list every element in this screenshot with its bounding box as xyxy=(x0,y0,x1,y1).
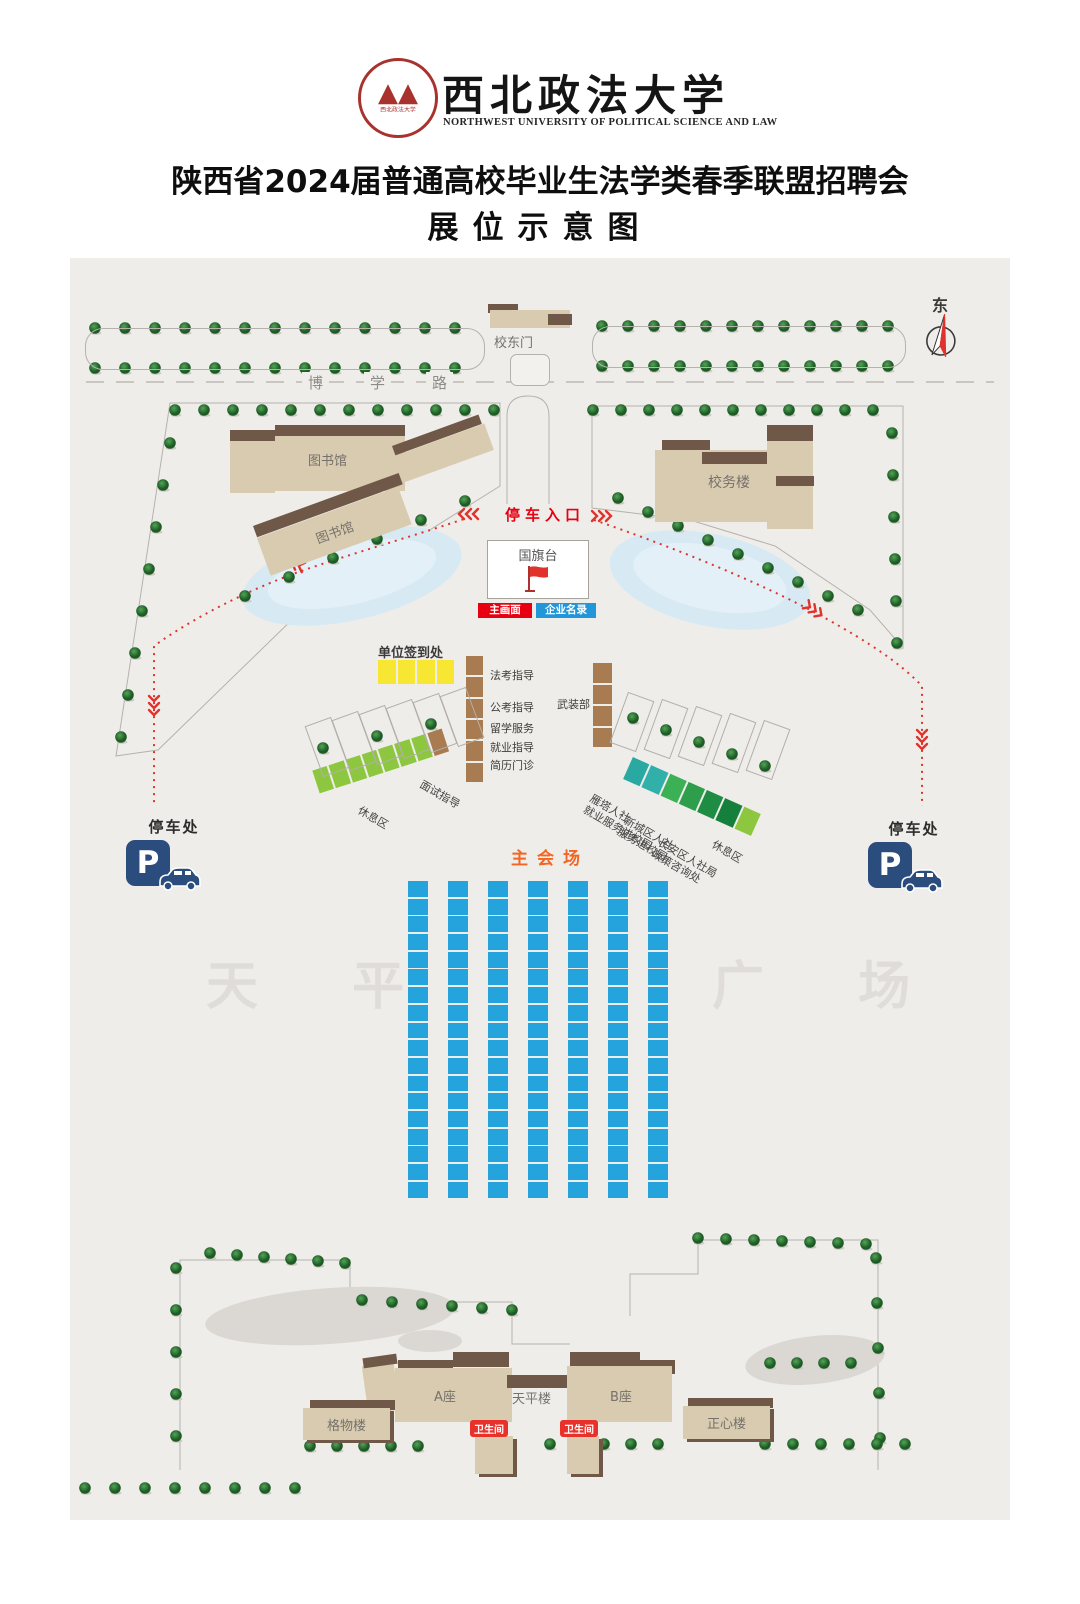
zhengxin-building: 正心楼 xyxy=(683,1406,770,1439)
tree-icon xyxy=(693,1233,704,1244)
booth-cell xyxy=(528,1182,548,1198)
strip-cell xyxy=(398,660,416,684)
chevron-arrow-icon xyxy=(917,730,927,749)
booth-cell xyxy=(488,1058,508,1074)
tree-icon xyxy=(257,405,268,416)
tianping-connector-roof xyxy=(507,1375,569,1388)
gate-booth xyxy=(510,354,550,386)
tree-icon xyxy=(672,405,683,416)
tree-icon xyxy=(357,1295,368,1306)
tree-icon xyxy=(402,405,413,416)
toilet-block-west xyxy=(475,1436,513,1474)
tree-icon xyxy=(158,480,169,491)
booth-cell xyxy=(608,1023,628,1039)
service-booth-label: 法考指导 xyxy=(490,667,534,683)
booth-cell xyxy=(408,1093,428,1109)
tree-icon xyxy=(315,405,326,416)
tree-icon xyxy=(171,1347,182,1358)
tree-icon xyxy=(616,405,627,416)
strip-cell xyxy=(593,728,612,748)
tree-icon xyxy=(290,1483,301,1494)
library-annex xyxy=(230,438,275,493)
tree-icon xyxy=(199,405,210,416)
booth-cell xyxy=(448,934,468,950)
booth-cell xyxy=(648,899,668,915)
booth-cell xyxy=(648,1111,668,1127)
tree-icon xyxy=(416,515,427,526)
booth-cell xyxy=(648,952,668,968)
booth-cell xyxy=(648,1058,668,1074)
tree-icon xyxy=(890,554,901,565)
tree-icon xyxy=(228,405,239,416)
strip-cell xyxy=(593,685,612,705)
main-screen-tag: 主画面 xyxy=(478,603,532,618)
tree-icon xyxy=(653,1439,664,1450)
strip-cell xyxy=(417,660,435,684)
booth-cell xyxy=(608,1129,628,1145)
booth-cell xyxy=(448,1129,468,1145)
tree-icon xyxy=(110,1483,121,1494)
booth-cell xyxy=(568,987,588,1003)
tree-icon xyxy=(733,549,744,560)
tree-icon xyxy=(756,405,767,416)
booth-cell xyxy=(568,969,588,985)
booth-cell xyxy=(488,987,508,1003)
booth-cell xyxy=(528,1005,548,1021)
booth-cell xyxy=(648,1093,668,1109)
booth-cell xyxy=(408,1146,428,1162)
gewu-building: 格物楼 xyxy=(303,1408,390,1440)
booth-cell xyxy=(648,1005,668,1021)
booth-cell xyxy=(568,899,588,915)
booth-cell xyxy=(608,934,628,950)
tree-icon xyxy=(749,1235,760,1246)
booth-cell xyxy=(608,1093,628,1109)
booth-cell xyxy=(528,916,548,932)
rock-blob xyxy=(743,1329,887,1391)
booth-cell xyxy=(608,1058,628,1074)
square-watermark-east: 广 场 xyxy=(712,944,948,1019)
booth-cell xyxy=(648,1040,668,1056)
booth-cell xyxy=(608,969,628,985)
strip-cell xyxy=(466,656,483,675)
rock-blob xyxy=(398,1330,462,1352)
poster-page: ▲▲ 西北政法大学 西北政法大学 NORTHWEST UNIVERSITY OF… xyxy=(0,0,1080,1604)
booth-cell xyxy=(448,916,468,932)
university-name-en: NORTHWEST UNIVERSITY OF POLITICAL SCIENC… xyxy=(443,117,778,128)
admin-label: 校务楼 xyxy=(708,472,750,492)
booth-cell xyxy=(488,899,508,915)
strip-cell xyxy=(437,660,455,684)
booth-cell xyxy=(608,1005,628,1021)
tree-icon xyxy=(777,1236,788,1247)
booth-cell xyxy=(608,1164,628,1180)
tree-icon xyxy=(230,1483,241,1494)
tree-icon xyxy=(489,405,500,416)
booth-cell xyxy=(528,934,548,950)
tree-icon xyxy=(763,563,774,574)
road-char: 路 xyxy=(426,372,453,393)
tree-icon xyxy=(872,1439,883,1450)
toilet-block-east xyxy=(567,1436,599,1474)
car-icon xyxy=(154,866,202,892)
booth-cell xyxy=(528,1146,548,1162)
library-label: 图书馆 xyxy=(308,450,347,469)
booth-cell xyxy=(608,899,628,915)
tree-icon xyxy=(171,1263,182,1274)
booth-cell xyxy=(488,1093,508,1109)
tree-icon xyxy=(626,1439,637,1450)
booth-cell xyxy=(448,1076,468,1092)
tree-icon xyxy=(644,405,655,416)
booth-cell xyxy=(568,1076,588,1092)
tree-icon xyxy=(144,564,155,575)
booth-cell xyxy=(608,881,628,897)
booth-cell xyxy=(488,1164,508,1180)
tree-icon xyxy=(853,605,864,616)
strip-cell xyxy=(593,706,612,726)
library-roof xyxy=(275,425,405,436)
tree-icon xyxy=(259,1252,270,1263)
booth-cell xyxy=(608,916,628,932)
booth-cell xyxy=(448,1146,468,1162)
booth-cell xyxy=(448,1040,468,1056)
east-gate-roof xyxy=(548,314,572,325)
booth-cell xyxy=(488,1023,508,1039)
booth-cell xyxy=(648,1076,668,1092)
booth-cell xyxy=(408,1164,428,1180)
tree-icon xyxy=(507,1305,518,1316)
parking-entrance-label: 停车入口 xyxy=(505,504,585,525)
tree-icon xyxy=(200,1483,211,1494)
tree-icon xyxy=(332,1441,343,1452)
admin-tower-roof xyxy=(767,425,813,441)
booth-cell xyxy=(568,1058,588,1074)
booth-cell xyxy=(488,881,508,897)
compass-icon xyxy=(916,310,966,372)
seal-mountain-icon: ▲▲ xyxy=(378,81,418,105)
university-seal-logo: ▲▲ 西北政法大学 xyxy=(358,58,438,138)
booth-column xyxy=(528,881,548,1199)
booth-cell xyxy=(648,969,668,985)
booth-cell xyxy=(488,1005,508,1021)
tree-icon xyxy=(721,1234,732,1245)
tree-icon xyxy=(116,732,127,743)
booth-cell xyxy=(488,916,508,932)
booth-cell xyxy=(568,1111,588,1127)
tree-icon xyxy=(232,1250,243,1261)
block-a-label: A座 xyxy=(434,1386,456,1405)
booth-cell xyxy=(648,1023,668,1039)
tree-icon xyxy=(805,1237,816,1248)
booth-cell xyxy=(648,1129,668,1145)
tree-icon xyxy=(305,1441,316,1452)
road-char: 博 xyxy=(302,372,329,393)
booth-cell xyxy=(648,934,668,950)
tree-icon xyxy=(151,522,162,533)
strip-cell xyxy=(466,741,483,760)
booth-cell xyxy=(528,1040,548,1056)
zhengxin-label: 正心楼 xyxy=(707,1413,746,1432)
booth-cell xyxy=(528,1111,548,1127)
booth-cell xyxy=(488,969,508,985)
tree-icon xyxy=(313,1256,324,1267)
booth-cell xyxy=(568,1146,588,1162)
chevron-arrow-icon xyxy=(592,511,611,521)
booth-cell xyxy=(488,1076,508,1092)
campus-map: 校东门 东 博 学 路 图书馆 图书馆 xyxy=(70,258,1010,1520)
booth-column xyxy=(648,881,668,1199)
booth-cell xyxy=(528,1058,548,1074)
tree-icon xyxy=(171,1389,182,1400)
tree-icon xyxy=(588,405,599,416)
tree-icon xyxy=(599,1439,610,1450)
tree-enclosure-west xyxy=(85,328,485,370)
tree-icon xyxy=(460,496,471,507)
tree-icon xyxy=(80,1483,91,1494)
booth-cell xyxy=(568,1182,588,1198)
road-char: 学 xyxy=(364,372,391,393)
booth-cell xyxy=(488,1111,508,1127)
armed-forces-label: 武装部 xyxy=(546,696,590,712)
booth-cell xyxy=(568,952,588,968)
booth-cell xyxy=(648,916,668,932)
tree-icon xyxy=(165,438,176,449)
booth-cell xyxy=(528,881,548,897)
admin-roof xyxy=(776,476,814,486)
tree-icon xyxy=(344,405,355,416)
booth-cell xyxy=(528,1164,548,1180)
car-icon xyxy=(896,868,944,894)
booth-cell xyxy=(528,1129,548,1145)
booth-cell xyxy=(608,1146,628,1162)
chevron-arrow-icon xyxy=(459,509,478,519)
tree-icon xyxy=(812,405,823,416)
library-annex-roof xyxy=(230,430,275,441)
tree-icon xyxy=(205,1248,216,1259)
strip-cell xyxy=(378,660,396,684)
booth-cell xyxy=(488,1129,508,1145)
booth-cell xyxy=(608,1040,628,1056)
tree-icon xyxy=(613,493,624,504)
booth-cell xyxy=(608,952,628,968)
tree-icon xyxy=(340,1258,351,1269)
block-a-roof xyxy=(453,1352,509,1367)
university-name-cn: 西北政法大学 xyxy=(442,62,730,123)
tree-icon xyxy=(819,1358,830,1369)
booth-cell xyxy=(528,1093,548,1109)
tree-icon xyxy=(793,577,804,588)
booth-column xyxy=(408,881,428,1199)
booth-cell xyxy=(568,1093,588,1109)
booth-cell xyxy=(488,1040,508,1056)
tree-icon xyxy=(816,1439,827,1450)
strip-cell xyxy=(466,763,483,782)
booth-cell xyxy=(568,1005,588,1021)
tree-icon xyxy=(792,1358,803,1369)
tree-icon xyxy=(844,1439,855,1450)
tree-icon xyxy=(788,1439,799,1450)
booth-cell xyxy=(448,1005,468,1021)
booth-cell xyxy=(448,1182,468,1198)
booth-cell xyxy=(568,1040,588,1056)
tree-icon xyxy=(873,1343,884,1354)
block-b-label: B座 xyxy=(610,1386,632,1405)
tianping-building-label: 天平楼 xyxy=(512,1388,551,1407)
tree-icon xyxy=(765,1358,776,1369)
booth-cell xyxy=(448,987,468,1003)
booth-cell xyxy=(608,1111,628,1127)
tree-icon xyxy=(417,1299,428,1310)
tree-enclosure-east xyxy=(592,326,906,368)
service-booth-label: 就业指导 xyxy=(490,739,534,755)
tree-icon xyxy=(373,405,384,416)
tree-icon xyxy=(386,1441,397,1452)
company-directory-tag: 企业名录 xyxy=(536,603,596,618)
tree-icon xyxy=(431,405,442,416)
booth-cell xyxy=(408,1076,428,1092)
booth-cell xyxy=(648,881,668,897)
booth-cell xyxy=(568,1023,588,1039)
booth-cell xyxy=(528,899,548,915)
red-flag-icon xyxy=(525,564,551,594)
booth-cell xyxy=(488,934,508,950)
tree-icon xyxy=(477,1303,488,1314)
flag-platform-label: 国旗台 xyxy=(518,545,557,564)
tree-icon xyxy=(840,405,851,416)
booth-cell xyxy=(488,1182,508,1198)
booth-cell xyxy=(408,1040,428,1056)
service-booth-label: 公考指导 xyxy=(490,699,534,715)
service-booth-label: 简历门诊 xyxy=(490,757,534,773)
tree-icon xyxy=(888,470,899,481)
tree-icon xyxy=(784,405,795,416)
booth-cell xyxy=(648,1146,668,1162)
tree-icon xyxy=(240,591,251,602)
booth-cell xyxy=(448,952,468,968)
booth-cell xyxy=(448,969,468,985)
tree-icon xyxy=(387,1297,398,1308)
booth-cell xyxy=(568,916,588,932)
tree-icon xyxy=(413,1441,424,1452)
booth-cell xyxy=(528,952,548,968)
center-median xyxy=(507,396,549,504)
tree-icon xyxy=(868,405,879,416)
booth-cell xyxy=(528,987,548,1003)
booth-cell xyxy=(448,899,468,915)
booth-cell xyxy=(528,1023,548,1039)
tree-icon xyxy=(703,535,714,546)
square-watermark-west: 天 平 xyxy=(206,944,442,1019)
booth-cell xyxy=(448,1164,468,1180)
main-venue-label: 主会场 xyxy=(470,844,630,869)
parking-spot-west-label: 停车处 xyxy=(126,816,222,837)
parking-spot-east-label: 停车处 xyxy=(866,818,962,839)
tree-icon xyxy=(286,1254,297,1265)
flag-platform: 国旗台 xyxy=(487,540,589,599)
booth-cell xyxy=(608,1182,628,1198)
tree-icon xyxy=(545,1439,556,1450)
booth-cell xyxy=(568,934,588,950)
service-booth-label: 留学服务 xyxy=(490,720,534,736)
tree-icon xyxy=(700,405,711,416)
tree-icon xyxy=(871,1253,882,1264)
tree-icon xyxy=(892,638,903,649)
tree-icon xyxy=(171,1431,182,1442)
fair-subtitle: 展位示意图 xyxy=(0,202,1080,247)
tree-icon xyxy=(170,1483,181,1494)
tree-icon xyxy=(643,507,654,518)
booth-cell xyxy=(408,1111,428,1127)
armed-forces-column xyxy=(593,663,612,747)
tree-icon xyxy=(284,572,295,583)
toilet-tag-west: 卫生间 xyxy=(470,1420,508,1437)
tree-icon xyxy=(823,591,834,602)
booth-column xyxy=(568,881,588,1199)
tree-icon xyxy=(861,1239,872,1250)
library2-label: 图书馆 xyxy=(313,516,356,547)
booth-cell xyxy=(408,1058,428,1074)
block-b-roof xyxy=(570,1352,640,1367)
seal-text: 西北政法大学 xyxy=(380,106,416,115)
booth-cell xyxy=(568,881,588,897)
booth-cell xyxy=(448,1023,468,1039)
booth-cell xyxy=(488,1146,508,1162)
tree-icon xyxy=(447,1301,458,1312)
tree-icon xyxy=(673,521,684,532)
booth-cell xyxy=(448,1111,468,1127)
tree-icon xyxy=(846,1358,857,1369)
tree-icon xyxy=(900,1439,911,1450)
tree-icon xyxy=(359,1441,370,1452)
strip-cell xyxy=(593,663,612,683)
tree-icon xyxy=(891,596,902,607)
booth-cell xyxy=(408,899,428,915)
tree-icon xyxy=(728,405,739,416)
tree-icon xyxy=(833,1238,844,1249)
toilet-tag-east: 卫生间 xyxy=(560,1420,598,1437)
booth-cell xyxy=(568,1164,588,1180)
tree-icon xyxy=(887,428,898,439)
booth-cell xyxy=(408,1023,428,1039)
tree-icon xyxy=(137,606,148,617)
booth-cell xyxy=(448,881,468,897)
booth-cell xyxy=(408,1182,428,1198)
chevron-arrow-icon xyxy=(149,696,159,715)
tree-icon xyxy=(286,405,297,416)
booth-cell xyxy=(568,1129,588,1145)
booth-cell xyxy=(448,1058,468,1074)
booth-cell xyxy=(408,1129,428,1145)
checkin-label: 单位签到处 xyxy=(378,642,443,661)
booth-cell xyxy=(648,1182,668,1198)
tree-icon xyxy=(170,405,181,416)
booth-cell xyxy=(448,1093,468,1109)
booth-column xyxy=(608,881,628,1199)
tree-icon xyxy=(874,1388,885,1399)
booth-cell xyxy=(488,952,508,968)
tree-icon xyxy=(760,1439,771,1450)
booth-column xyxy=(488,881,508,1199)
booth-cell xyxy=(408,881,428,897)
fair-title: 陕西省2024届普通高校毕业生法学类春季联盟招聘会 xyxy=(0,156,1080,201)
tree-icon xyxy=(260,1483,271,1494)
tree-icon xyxy=(123,690,134,701)
booth-cell xyxy=(608,1076,628,1092)
booth-column xyxy=(448,881,468,1199)
tree-icon xyxy=(872,1298,883,1309)
booth-cell xyxy=(528,1076,548,1092)
